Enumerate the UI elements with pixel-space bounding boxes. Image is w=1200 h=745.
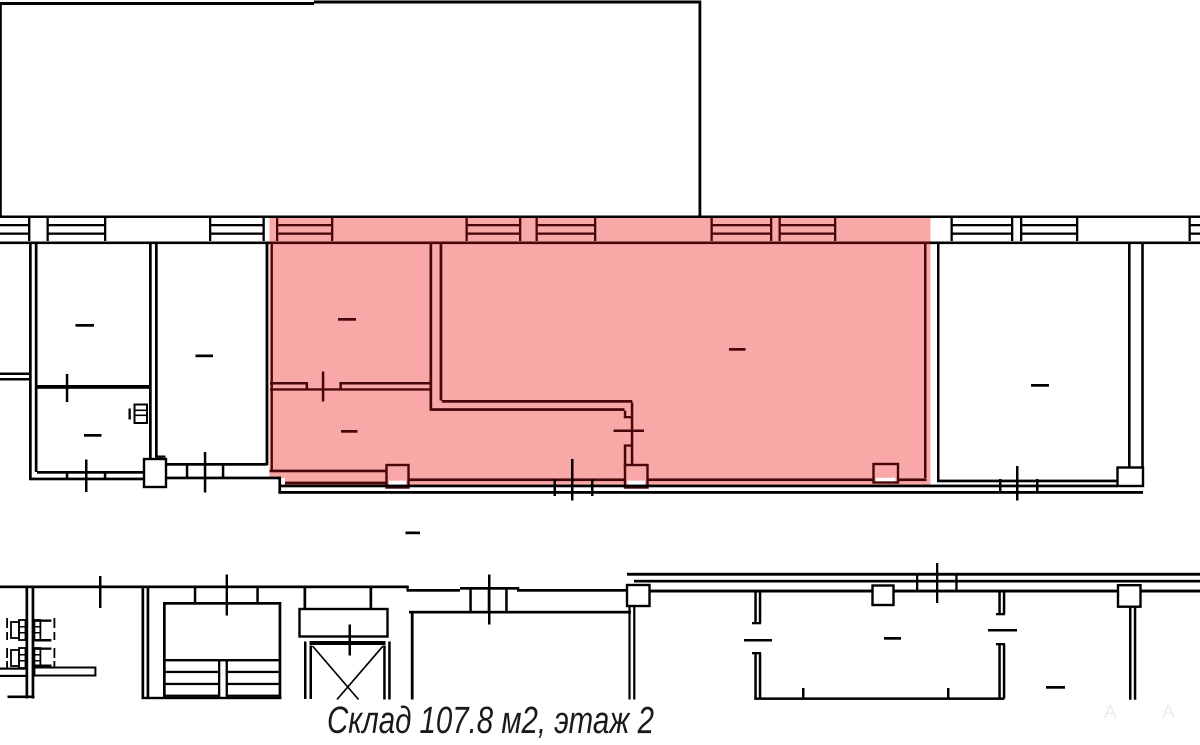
svg-text:Склад 107.8 м2, этаж 2: Склад 107.8 м2, этаж 2: [327, 700, 654, 742]
svg-text:А: А: [1162, 702, 1175, 723]
svg-text:А: А: [1104, 702, 1117, 723]
